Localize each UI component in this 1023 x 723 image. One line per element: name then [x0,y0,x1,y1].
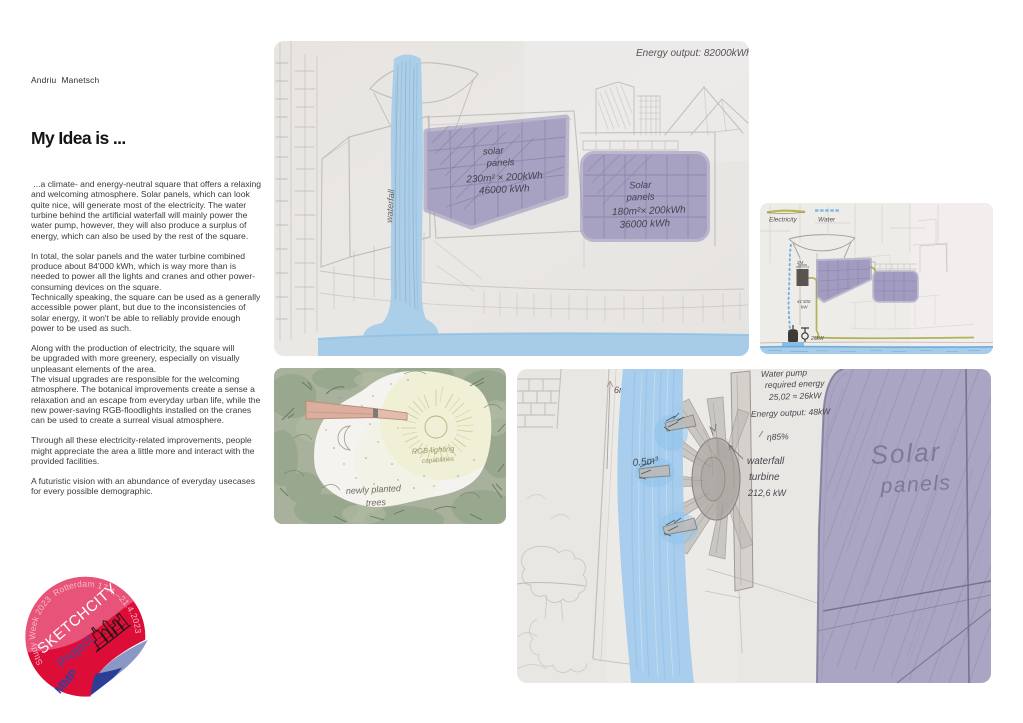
svg-text:36000 kWh: 36000 kWh [619,218,670,231]
svg-text:waterfall: waterfall [747,456,785,467]
svg-text:Energy output: 82000kWh: Energy output: 82000kWh [636,48,749,59]
svg-text:Water pump: Water pump [761,369,808,379]
svg-text:required energy: required energy [765,378,826,390]
svg-text:212,6 kW: 212,6 kW [747,488,788,498]
svg-text:Solar: Solar [870,436,942,470]
svg-text:kW: kW [801,305,808,310]
svg-text:panels: panels [879,471,952,498]
svg-text:panels: panels [625,192,655,204]
svg-text:kW: kW [801,265,808,270]
svg-text:solar: solar [483,145,505,157]
svg-text:41'300: 41'300 [797,299,811,304]
svg-text:25,02 ≈ 26kW: 25,02 ≈ 26kW [768,390,823,402]
svg-text:panels: panels [485,157,515,170]
svg-text:Electricity: Electricity [769,217,798,224]
svg-text:Water: Water [818,217,836,224]
svg-text:Solar: Solar [629,180,652,192]
svg-text:turbine: turbine [749,472,780,483]
svg-text:trees: trees [366,497,387,508]
svg-text:26kW: 26kW [810,336,825,342]
svg-text:η85%: η85% [767,431,790,442]
